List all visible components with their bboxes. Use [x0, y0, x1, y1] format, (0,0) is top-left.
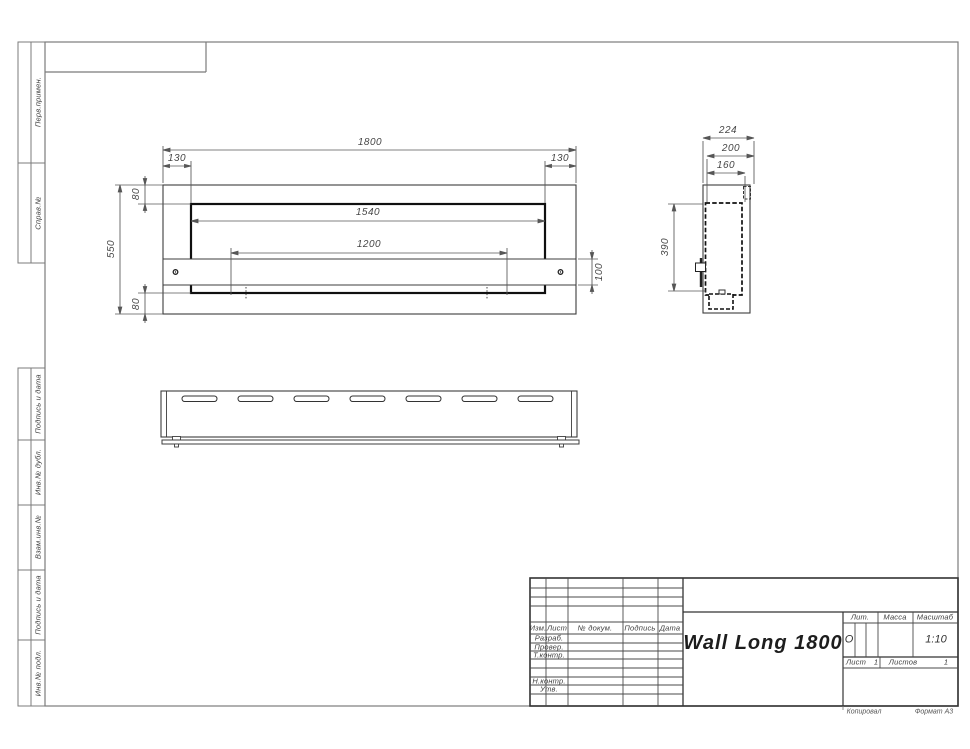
- bottom-view: [161, 391, 579, 447]
- stamp-label-inv-podl: Инв.№ подл.: [34, 650, 42, 697]
- dim-overall-height: 550: [107, 240, 117, 258]
- tb-row-razrab: Разраб.: [535, 634, 564, 642]
- tb-lit-label: Лит.: [851, 613, 869, 621]
- stamp-label-podpis-data-2: Подпись и дата: [34, 575, 42, 635]
- tb-scale-value: 1:10: [925, 635, 946, 646]
- tb-lit-value: О: [845, 635, 854, 646]
- dim-top-flange: 80: [132, 188, 142, 200]
- dim-inner-depth: 200: [722, 144, 740, 154]
- tb-col-data: Дата: [660, 624, 681, 632]
- dim-opening-height: 390: [661, 238, 671, 256]
- tb-col-izm: Изм.: [530, 624, 547, 632]
- dim-strip-height: 100: [595, 263, 605, 281]
- dim-overall-width: 1800: [358, 138, 382, 148]
- dim-inner-span: 1200: [357, 240, 381, 250]
- stamp-label-perv-primen: Перв.примен.: [34, 77, 42, 127]
- dim-left-offset: 130: [168, 154, 186, 164]
- copied-label: Копировал: [847, 709, 882, 716]
- dim-bottom-flange: 80: [132, 298, 142, 310]
- tb-row-tkontr: Т.контр.: [533, 651, 565, 659]
- dim-overall-depth: 224: [719, 126, 737, 136]
- tb-sheet-value: 1: [874, 658, 878, 666]
- tb-col-podpis: Подпись: [624, 624, 655, 632]
- tb-sheet-label: Лист: [846, 658, 866, 666]
- tb-row-utv: Утв.: [540, 685, 558, 693]
- side-view: [696, 185, 751, 313]
- drawing-title: Wall Long 1800: [683, 633, 842, 653]
- drawing-sheet: Перв.примен. Справ.№ Подпись и дата Инв.…: [0, 0, 970, 749]
- tb-col-list: Лист: [547, 624, 567, 632]
- format-label: Формат А3: [915, 709, 953, 716]
- stamp-label-inv-dubl: Инв.№ дубл.: [34, 449, 42, 495]
- tb-sheets-label: Листов: [889, 658, 918, 666]
- stamp-label-podpis-data-1: Подпись и дата: [34, 374, 42, 434]
- dim-right-offset: 130: [551, 154, 569, 164]
- dim-opening-depth: 160: [717, 161, 735, 171]
- tb-sheets-value: 1: [944, 658, 948, 666]
- tb-col-ndokum: № докум.: [578, 624, 613, 632]
- tb-scale-label: Масштаб: [917, 613, 953, 621]
- stamp-label-sprav-no: Справ.№: [34, 196, 42, 229]
- sheet-frame: [45, 42, 958, 706]
- stamp-label-vzam-inv: Взам.инв.№: [34, 515, 42, 559]
- dim-opening-width: 1540: [356, 208, 380, 218]
- tb-mass-label: Масса: [883, 613, 906, 621]
